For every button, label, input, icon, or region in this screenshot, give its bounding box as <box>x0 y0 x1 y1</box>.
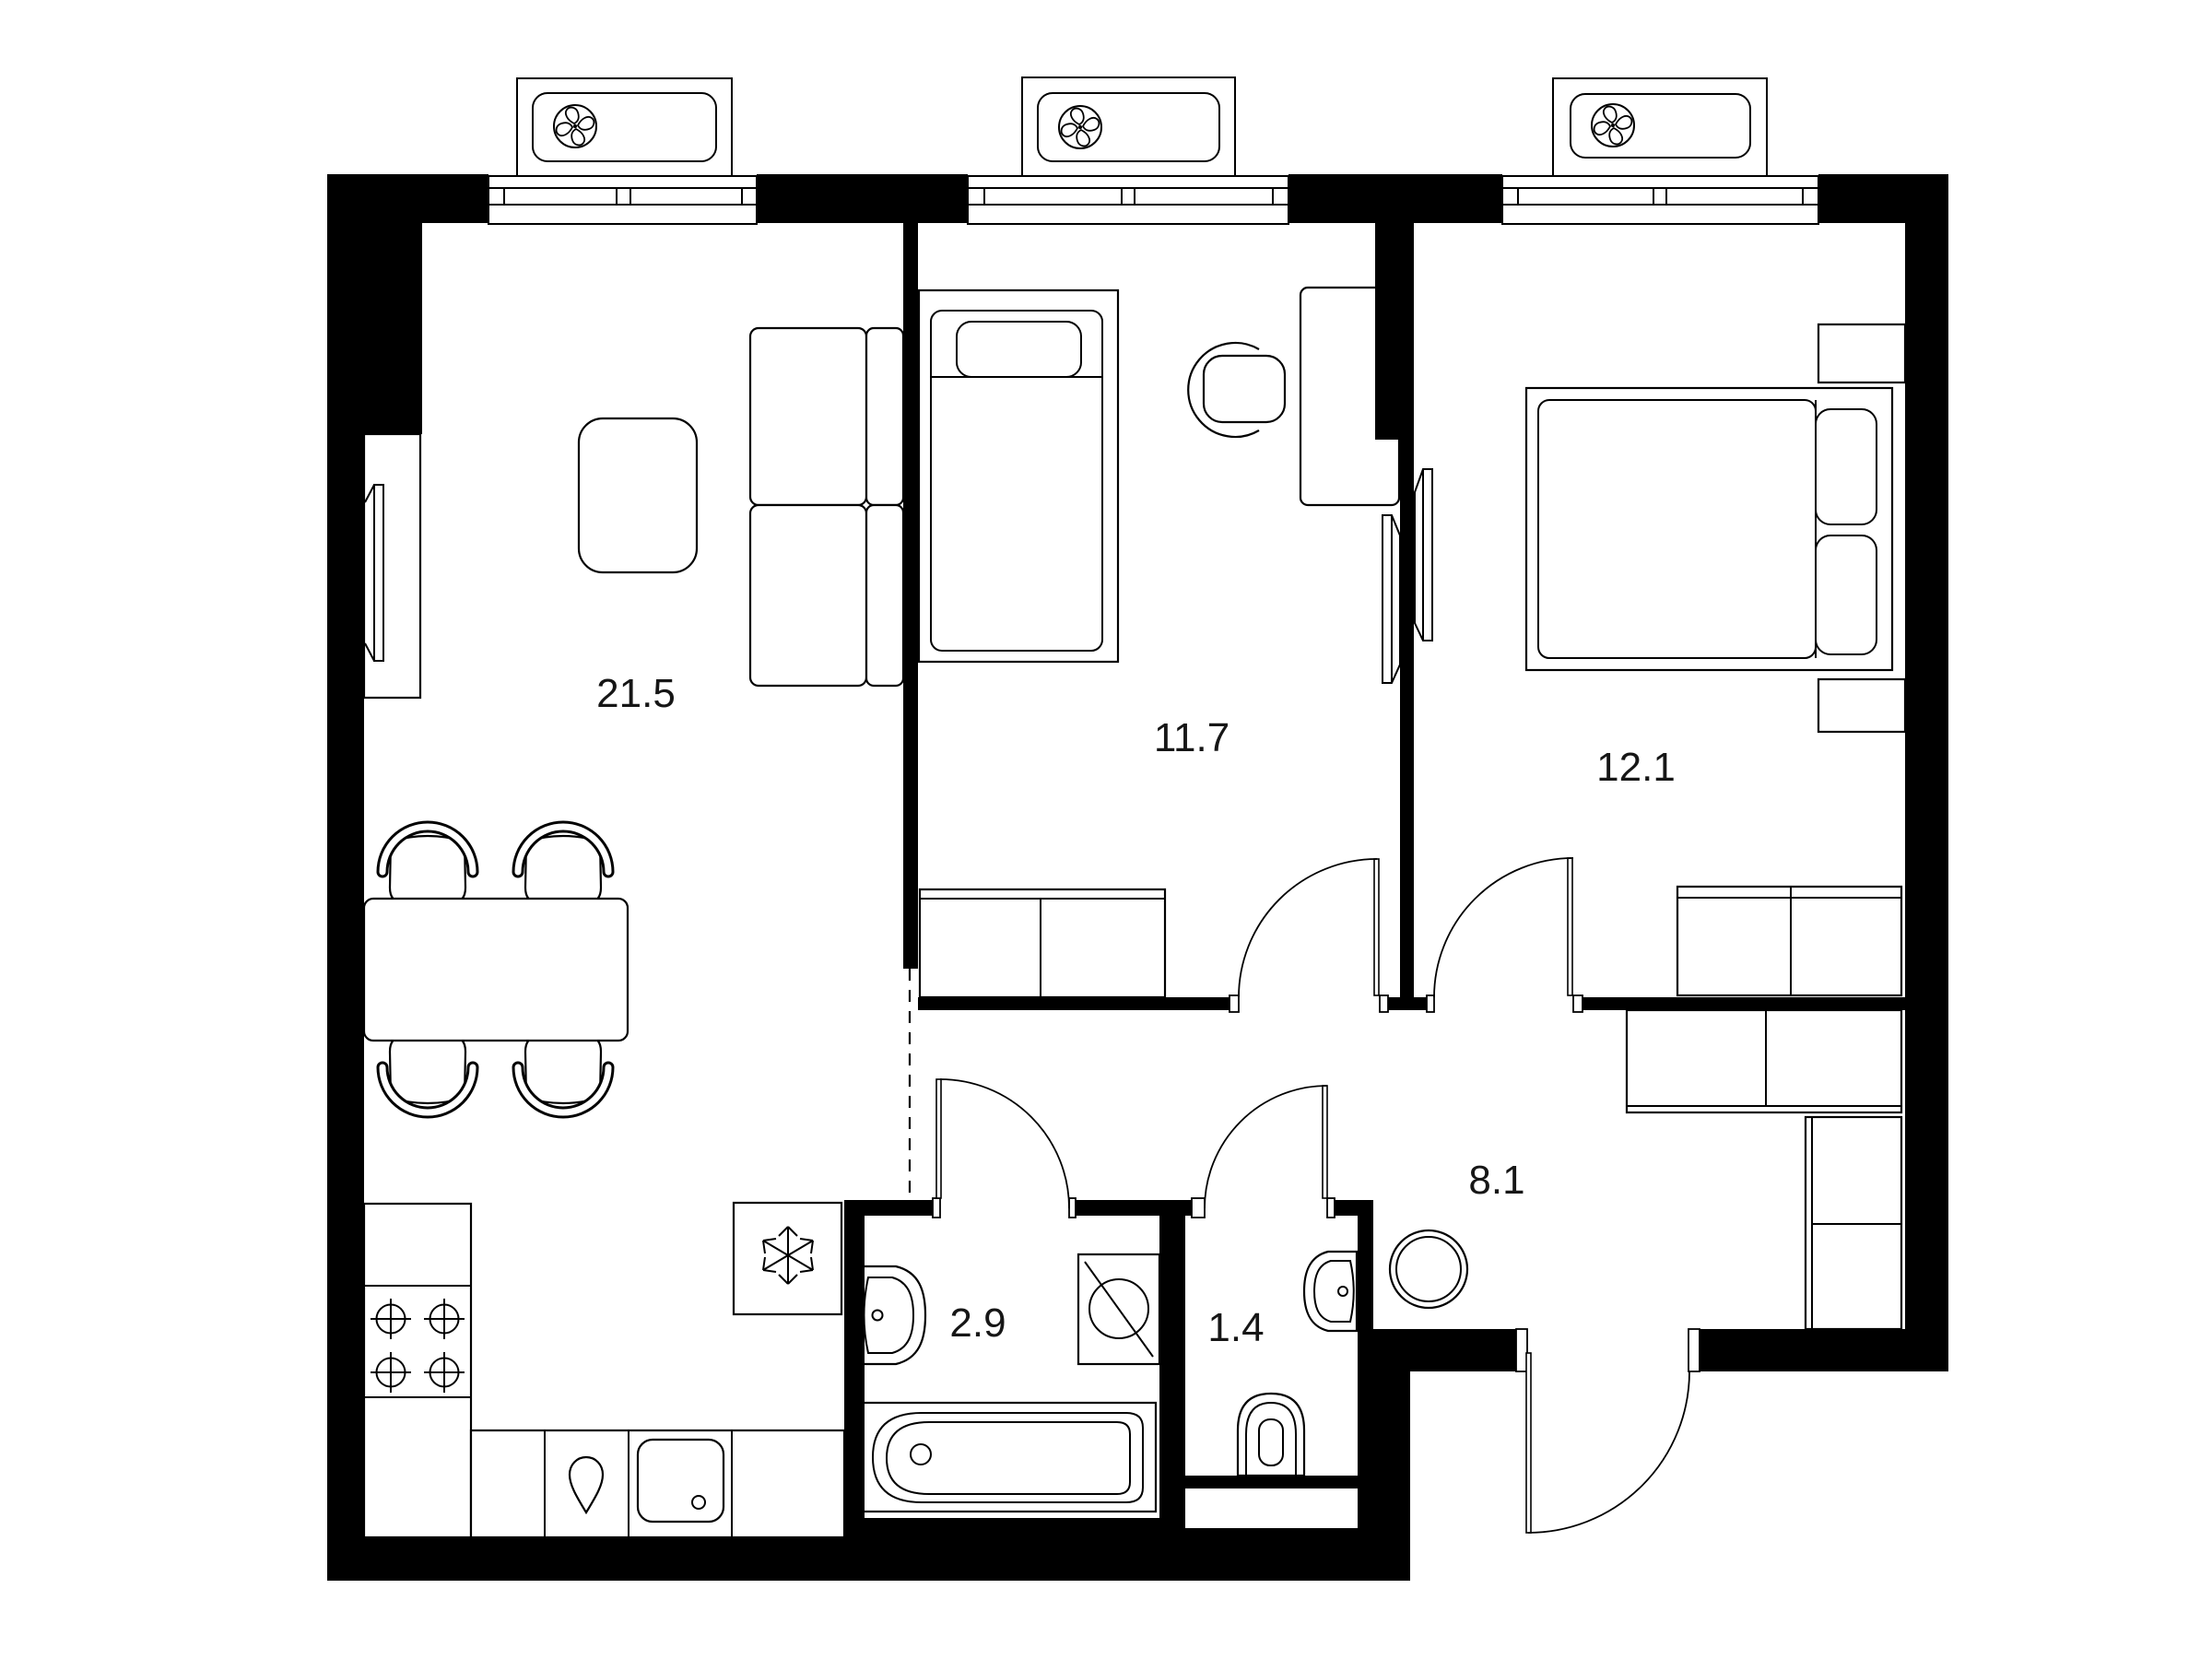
svg-text:1.4: 1.4 <box>1207 1305 1264 1350</box>
svg-text:12.1: 12.1 <box>1596 745 1676 790</box>
svg-text:8.1: 8.1 <box>1468 1158 1524 1203</box>
svg-text:11.7: 11.7 <box>1154 715 1230 760</box>
svg-text:21.5: 21.5 <box>596 671 676 716</box>
svg-text:2.9: 2.9 <box>949 1300 1006 1346</box>
